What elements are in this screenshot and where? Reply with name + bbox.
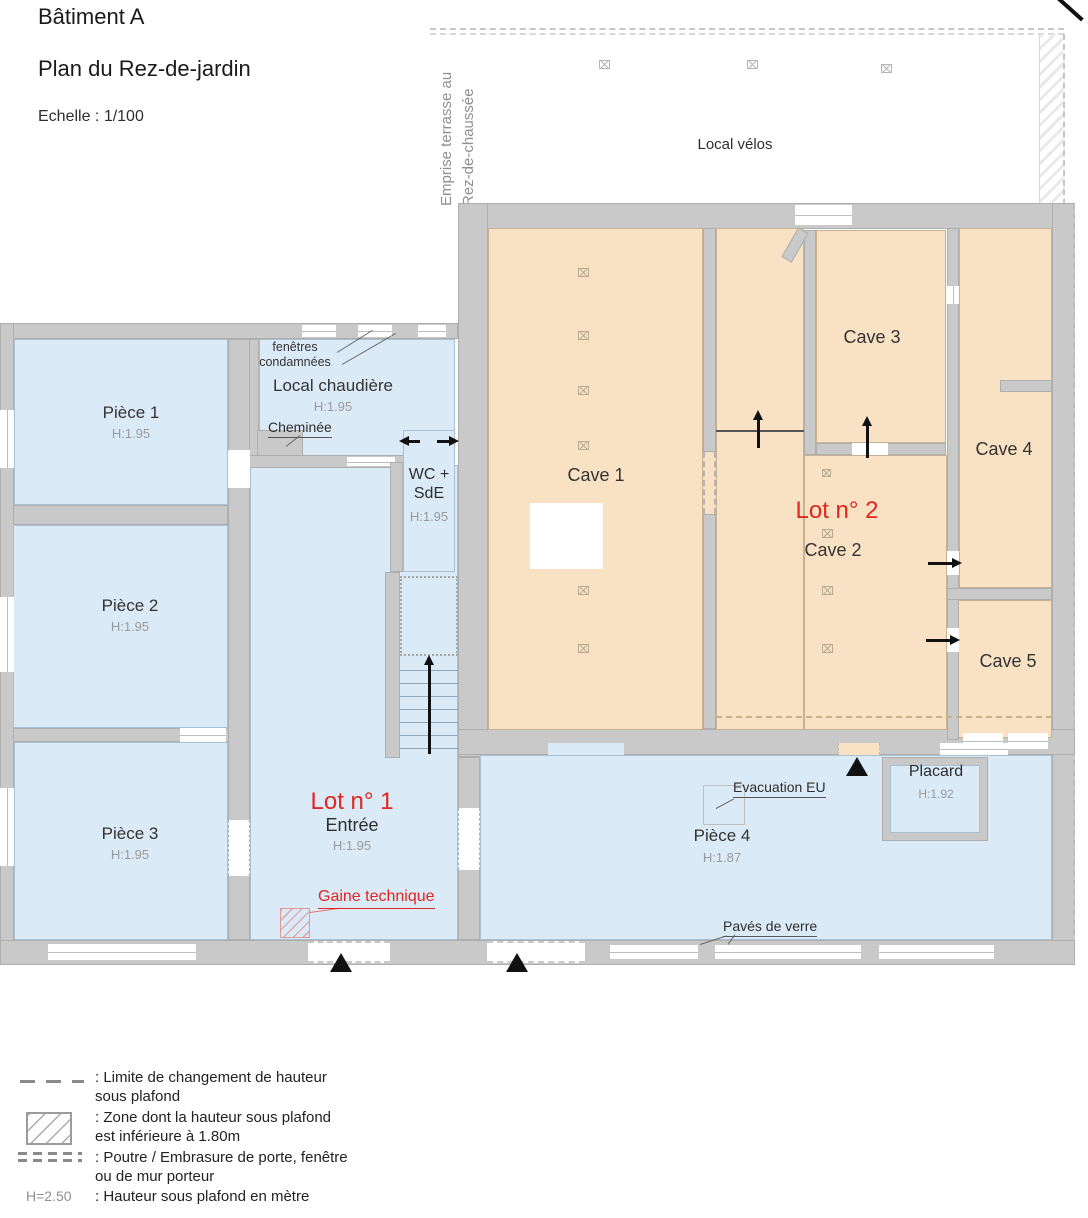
entrance-opening [487, 941, 585, 963]
legend-item-label: : Poutre / Embrasure de porte, fenêtre o… [95, 1148, 348, 1186]
column-post-icon [578, 331, 589, 340]
stair-landing-dotted [400, 576, 458, 656]
window-opening [48, 944, 196, 960]
floor-plan-canvas: Bâtiment A Plan du Rez-de-jardin Echelle… [0, 0, 1088, 1218]
stairs-up-arrow [428, 664, 431, 754]
legend-item-label: : Zone dont la hauteur sous plafond est … [95, 1108, 331, 1146]
window-opening [418, 325, 446, 337]
legend-double-dash-symbol [18, 1152, 82, 1155]
room-label-local-velos: Local vélos [697, 136, 772, 154]
building-title: Bâtiment A [38, 4, 144, 30]
wall [703, 514, 716, 729]
scale-label: Echelle : 1/100 [38, 108, 144, 127]
note-fenetres-condamnees: fenêtres condamnées [259, 340, 331, 370]
height-label: H:1.95 [410, 509, 448, 524]
wall [947, 588, 1052, 600]
height-limit-line [716, 716, 1052, 718]
door-embrasure [347, 457, 395, 466]
window-opening [940, 743, 1008, 755]
wall [385, 572, 400, 758]
column-post-icon [822, 469, 831, 477]
column-post-icon [747, 60, 758, 69]
wall [1000, 380, 1052, 392]
column-post-icon [578, 268, 589, 277]
window-opening [1008, 733, 1048, 749]
window-opening [610, 945, 698, 959]
height-label: H:1.95 [111, 847, 149, 862]
column-post-icon [822, 644, 833, 653]
column-post-icon [822, 586, 833, 595]
column-post-icon [599, 60, 610, 69]
height-label: H:1.87 [703, 850, 741, 865]
window-opening [0, 788, 14, 866]
room-label-wc: WC + SdE [409, 466, 449, 504]
door-arrow [866, 424, 869, 458]
room-label-piece4: Pièce 4 [694, 826, 751, 846]
legend-item-label: : Hauteur sous plafond en mètre [95, 1187, 309, 1206]
room-label-cave4: Cave 4 [975, 439, 1032, 460]
lot1-label: Lot n° 1 [311, 788, 394, 816]
window-opening [0, 410, 14, 468]
room-label-cave5: Cave 5 [979, 651, 1036, 672]
window-opening [302, 325, 336, 337]
door-opening [228, 450, 250, 488]
terrace-outline-top [430, 28, 1064, 35]
room-label-placard: Placard [909, 763, 963, 782]
room-label-cave1: Cave 1 [567, 465, 624, 486]
height-label: H:1.95 [111, 619, 149, 634]
room-label-piece3: Pièce 3 [102, 824, 159, 844]
door-opening-dashed [458, 808, 480, 870]
column-post-icon [881, 64, 892, 73]
column-post-icon [578, 386, 589, 395]
note-paves-de-verre: Pavés de verre [723, 918, 817, 937]
room-cave2-upper [716, 228, 804, 730]
wall [13, 505, 228, 525]
legend-height-symbol: H=2.50 [26, 1188, 72, 1205]
door-arrow [928, 562, 954, 565]
void-area [530, 503, 603, 569]
note-evacuation-eu: Evacuation EU [733, 779, 826, 798]
door-opening [838, 743, 880, 755]
terrace-outline-right-hatch [1039, 34, 1065, 205]
wall [947, 228, 959, 740]
room-label-cave2: Cave 2 [804, 540, 861, 561]
window-opening [879, 945, 994, 959]
door-arrow [926, 639, 952, 642]
door-arrow-head [399, 436, 409, 446]
column-post-icon [578, 586, 589, 595]
door-arrow-head [449, 436, 459, 446]
legend-hatch-symbol [26, 1112, 72, 1145]
window-opening [0, 597, 14, 672]
entrance-triangle-icon [846, 757, 868, 776]
north-arrow-icon [1054, 0, 1083, 22]
height-label: H:1.92 [918, 787, 953, 801]
entrance-triangle-icon [506, 953, 528, 972]
room-cave4 [959, 228, 1052, 588]
wall [458, 203, 1075, 229]
room-label-piece2: Pièce 2 [102, 596, 159, 616]
gaine-technique-hatch [280, 908, 310, 938]
legend-double-dash-symbol [18, 1159, 82, 1162]
height-label: H:1.95 [333, 838, 371, 853]
door-arrow [757, 418, 760, 448]
lot2-label: Lot n° 2 [796, 497, 879, 525]
note-gaine-technique: Gaine technique [318, 888, 435, 909]
window-opening [795, 205, 852, 225]
column-post-icon [822, 529, 833, 538]
wall [390, 462, 403, 572]
legend-item-label: : Limite de changement de hauteur sous p… [95, 1068, 327, 1106]
plan-title: Plan du Rez-de-jardin [38, 56, 251, 82]
stairs-up-arrow-head [424, 655, 434, 665]
door-arrow-head [952, 558, 962, 568]
height-label: H:1.95 [112, 426, 150, 441]
wall [458, 203, 488, 757]
window-opening [715, 945, 861, 959]
height-limit-line [716, 430, 804, 432]
wall-dashed [703, 452, 716, 514]
door-opening [180, 728, 226, 742]
note-cheminee: Cheminée [268, 419, 332, 438]
terrace-edge-label: Emprise terrasse au Rez-de-chaussée [436, 26, 480, 206]
wall [703, 228, 716, 452]
door-opening-dashed [228, 820, 250, 876]
room-label-cave3: Cave 3 [843, 327, 900, 348]
entrance-triangle-icon [330, 953, 352, 972]
wall [1052, 203, 1075, 965]
door-arrow-head [862, 416, 872, 426]
room-label-chaudiere: Local chaudière [273, 376, 393, 396]
wall-opening [548, 743, 624, 755]
door-arrow-head [753, 410, 763, 420]
door-opening [947, 286, 959, 304]
room-label-entree: Entrée [325, 815, 378, 836]
legend-dash-symbol [20, 1080, 84, 1083]
column-post-icon [578, 441, 589, 450]
wall [804, 230, 816, 455]
door-opening [852, 443, 888, 455]
column-post-icon [578, 644, 589, 653]
door-arrow-head [950, 635, 960, 645]
height-label: H:1.95 [314, 399, 352, 414]
room-label-piece1: Pièce 1 [103, 403, 160, 423]
